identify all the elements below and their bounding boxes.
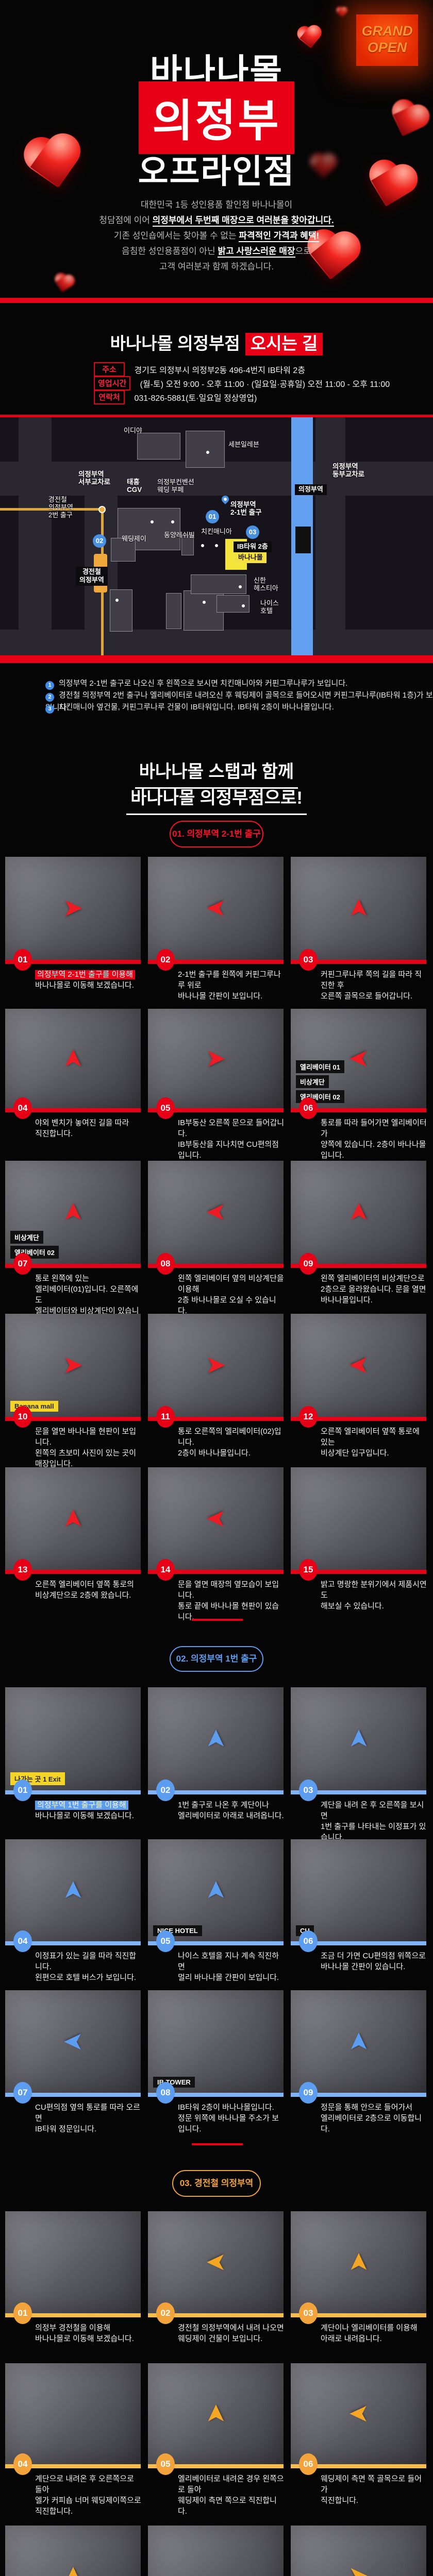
direction-arrow-icon: ➤: [61, 1880, 86, 1901]
red-divider-band-map: [0, 655, 433, 663]
caption-line: 비상계단으로 2층에 왔습니다.: [35, 1590, 142, 1601]
step-number-badge-10: 10: [13, 1406, 32, 1428]
step-caption-04: 이정표가 있는 길을 따라 직진합니다.왼편으로 호텔 버스가 보입니다.: [35, 1951, 142, 1983]
step-caption-06: 조금 더 가면 CU편의점 위쪽으로바나나몰 간판이 있습니다.: [321, 1951, 428, 1972]
map-label: 의정부컨벤션 웨딩 부페: [157, 478, 194, 494]
step-number-badge-11: 11: [156, 1406, 175, 1428]
phone-label: 연락처: [94, 390, 125, 404]
map-label: 나이스 호텔: [260, 599, 279, 615]
caption-line: 통로 오른쪽의 엘리베이터(02)입니다.: [178, 1426, 285, 1448]
phone-value: 031-826-5881(토·일요일 정상영업): [134, 394, 257, 403]
section-pill-1: 01. 의정부역 2-1번 출구: [170, 821, 263, 848]
step-photo-01-04: ➤: [5, 1009, 141, 1108]
legend-badge-1: 1: [45, 681, 54, 690]
map-road: [19, 417, 52, 655]
caption-line: 2층 바나나몰로 오실 수 있습니다.: [178, 1295, 285, 1316]
caption-line: 왼쪽 엘리베이터의 비상계단으로: [321, 1273, 428, 1284]
direction-arrow-icon: ➤: [346, 1202, 371, 1223]
legend-text: 의정부역 2-1번 출구로 나오신 후 왼쪽으로 보시면 치킨매니아와 커핀그루…: [59, 679, 347, 688]
step-number-badge-08: 08: [156, 2082, 175, 2104]
caption-line: 멀리 바나나몰 간판이 보입니다.: [178, 1972, 285, 1983]
section-divider-2: [192, 2143, 243, 2145]
caption-line: 직진합니다.: [321, 2495, 428, 2506]
caption-line: 엘리베이터로 아래로 내려옵니다.: [178, 1810, 285, 1821]
address-value: 경기도 의정부시 의정부2동 496-4번지 IB타워 2층: [134, 366, 305, 375]
direction-arrow-icon: ➤: [61, 1202, 86, 1223]
step-number-badge-14: 14: [156, 1559, 175, 1581]
step-number-badge-02: 02: [156, 949, 175, 971]
caption-line: 통로 왼쪽에 있는: [35, 1273, 142, 1284]
intro-highlight: 의정부에서 두번째 매장으로 여러분을 찾아갑니다.: [153, 215, 334, 227]
step-number-badge-08: 08: [156, 1253, 175, 1275]
step-caption-03: 계단이나 엘리베이터를 이용해아래로 내려옵니다.: [321, 2323, 428, 2344]
intro-text: 으로: [295, 246, 311, 256]
step-number-badge-04: 04: [13, 1097, 32, 1119]
step-photo-01-03: ➤: [291, 857, 426, 960]
map-label: 경전철 의정부역 2번 출구: [48, 496, 73, 519]
step-number-badge-01: 01: [13, 949, 32, 971]
intro-highlight: 밝고 사랑스러운 매장: [218, 246, 295, 258]
caption-line: IB타워 정문입니다.: [35, 2124, 142, 2134]
caption-line: 웨딩제이 건물이 보입니다.: [178, 2333, 285, 2344]
step-caption-07: CU편의점 옆의 통로를 따라 오르면IB타워 정문입니다.: [35, 2102, 142, 2134]
map-building: [166, 593, 181, 629]
map-label: 의정부역 동부교차로: [332, 463, 364, 478]
direction-arrow-icon: ➤: [61, 1048, 86, 1069]
photo-label-chip: 비상계단: [10, 1231, 43, 1244]
step-photo-02-08: IB TOWER: [148, 1990, 284, 2093]
step-photo-03-02: ➤: [148, 2211, 284, 2313]
caption-line: 경전철 의정부역에서 내려 나오면: [178, 2323, 285, 2333]
intro-highlight: 파격적인 가격과 혜택!: [239, 231, 319, 242]
caption-line: 직진합니다.: [35, 1128, 142, 1139]
directions-heading: 바나나몰 의정부점오시는 길: [0, 330, 433, 354]
step-number-badge-04: 04: [13, 2453, 32, 2475]
heart-icon: [52, 275, 75, 296]
step-caption-01: 의정부역 2-1번 출구를 이용해바나나몰로 이동해 보겠습니다.: [35, 969, 142, 991]
caption-line: 엘리베이터로 2층으로 이동합니다.: [321, 2113, 428, 2134]
caption-line: 계단으로 내려온 후 오른쪽으로 돌아: [35, 2473, 142, 2495]
map-label: 세븐일레븐: [228, 440, 259, 448]
legend-text: 치킨매니아 옆건물, 커핀그루나루 건물이 IB타워입니다. IB타워 2층이 …: [59, 703, 334, 711]
step-number-badge-13: 13: [13, 1559, 32, 1581]
map-leader-dot: [115, 599, 119, 602]
step-caption-13: 오른쪽 엘리베이터 옆쪽 통로의비상계단으로 2층에 왔습니다.: [35, 1579, 142, 1601]
promo-page: 바나나몰 의정부 오프라인점 GRAND OPEN 대한민국 1등 성인용품 할…: [0, 0, 433, 2576]
caption-highlight: 의정부역 1번 출구를 이용해: [35, 1801, 128, 1810]
step-photo-03-06: ➤: [291, 2363, 426, 2464]
caption-line: 바나나몰입니다.: [321, 1295, 428, 1306]
step-photo-01-01: ➤: [5, 857, 141, 960]
step-caption-09: 왼쪽 엘리베이터의 비상계단으로2층으로 올라왔습니다. 문을 열면바나나몰입니…: [321, 1273, 428, 1306]
map-point-badge-02: 02: [93, 534, 106, 548]
route-map: 이디야세븐일레븐의정부역 서부교차로태흥 CGV의정부컨벤션 웨딩 부페의정부역…: [0, 417, 433, 655]
intro-line-5: 고객 여러분과 함께 하겠습니다.: [0, 259, 433, 275]
map-leader-dot: [239, 585, 242, 588]
step-photo-02-06: CU: [291, 1839, 426, 1941]
caption-line: 엘리베이터로 내려온 경우 왼쪽으로 돌아: [178, 2473, 285, 2495]
steps-heading-line2: 바나나몰 의정부점으로!: [0, 784, 433, 815]
map-label: 태흥 CGV: [127, 478, 142, 494]
map-label: 신한 헤스티아: [254, 577, 278, 592]
step-caption-08: IB타워 2층이 바나나몰입니다.정문 위쪽에 바나나몰 주소가 보입니다.: [178, 2102, 285, 2134]
directions-heading-accent: 오시는 길: [245, 333, 323, 355]
direction-arrow-icon: ➤: [348, 1353, 369, 1378]
address-label: 주소: [94, 362, 125, 377]
caption-line: CU편의점 옆의 통로를 따라 오르면: [35, 2102, 142, 2124]
grand-open-line2: OPEN: [356, 39, 418, 56]
map-road: [315, 417, 345, 655]
caption-line: 문을 열면 매장의 옆모습이 보입니다.: [178, 1579, 285, 1601]
caption-line: 조금 더 가면 CU편의점 위쪽으로: [321, 1951, 428, 1961]
direction-arrow-icon: ➤: [205, 1353, 226, 1378]
caption-line: 야외 벤치가 놓여진 길을 따라: [35, 1117, 142, 1128]
step-photo-01-12: ➤: [291, 1314, 426, 1417]
direction-arrow-icon: ➤: [348, 1046, 369, 1071]
direction-arrow-icon: ➤: [204, 2403, 228, 2424]
map-building: [110, 589, 132, 632]
step-caption-09: 정문을 통해 안으로 들어가서엘리베이터로 2층으로 이동합니다.: [321, 2102, 428, 2134]
caption-line: 1번 출구로 나온 후 계단이나: [178, 1800, 285, 1810]
step-caption-14: 문을 열면 매장의 옆모습이 보입니다.통로 끝에 바나나몰 현판이 있습니다.: [178, 1579, 285, 1622]
caption-line: 나이스 호텔을 지나 계속 직진하면: [178, 1951, 285, 1972]
direction-arrow-icon: ➤: [205, 2250, 226, 2275]
step-photo-03-07: ➤: [5, 2526, 141, 2576]
caption-line: 엘리베이터(01)입니다. 오른쪽에도: [35, 1284, 142, 1306]
step-number-badge-07: 07: [13, 1253, 32, 1275]
caption-line: 의정부역 2-1번 출구를 이용해: [35, 969, 142, 980]
caption-line: 웨딩제이 측면 쪽으로 직진합니다.: [178, 2495, 285, 2517]
section-divider-1: [192, 1619, 243, 1621]
step-photo-01-11: ➤: [148, 1314, 284, 1417]
step-photo-03-03: ➤: [291, 2211, 426, 2313]
step-caption-03: 계단을 내려 온 후 오른쪽을 보시면1번 출구를 나타내는 이정표가 있습니다…: [321, 1800, 428, 1843]
section-pill-2: 02. 의정부역 1번 출구: [170, 1646, 263, 1672]
caption-line: 아래로 내려옵니다.: [321, 2333, 428, 2344]
step-caption-02: 경전철 의정부역에서 내려 나오면웨딩제이 건물이 보입니다.: [178, 2323, 285, 2344]
legend-badge-2: 2: [45, 693, 54, 702]
caption-line: 문을 열면 바나나몰 현판이 보입니다.: [35, 1426, 142, 1448]
direction-arrow-icon: ➤: [346, 1728, 371, 1749]
step-caption-04: 야외 벤치가 놓여진 길을 따라직진합니다.: [35, 1117, 142, 1139]
map-leader-dot: [171, 520, 174, 523]
step-caption-05: 나이스 호텔을 지나 계속 직진하면멀리 바나나몰 간판이 보입니다.: [178, 1951, 285, 1983]
map-label: 의정부역 서부교차로: [78, 470, 110, 486]
step-caption-03: 커핀그루나루 쪽의 길을 따라 직진한 후오른쪽 골목으로 들어갑니다.: [321, 969, 428, 1002]
map-leader-dot: [203, 601, 206, 604]
step-number-badge-06: 06: [299, 1097, 318, 1119]
direction-arrow-icon: ➤: [346, 2031, 371, 2052]
caption-line: 정문을 통해 안으로 들어가서: [321, 2102, 428, 2113]
map-leader-dot: [151, 520, 154, 523]
section-pill-3: 03. 경전철 의정부역: [172, 2170, 261, 2197]
direction-arrow-icon: ➤: [346, 898, 371, 919]
step-photo-03-04: [5, 2363, 141, 2464]
step-number-badge-09: 09: [299, 1253, 318, 1275]
map-station-box: 의정부역: [295, 484, 327, 495]
phone-row: 연락처 031-826-5881(토·일요일 정상영업): [94, 390, 257, 403]
lrt-exit-dot: [98, 506, 106, 513]
caption-line: 바나나몰 간판이 보입니다.: [178, 991, 285, 1002]
intro-text: 청담점에 이어: [99, 215, 152, 225]
step-number-badge-15: 15: [299, 1559, 318, 1581]
map-label: 의정부역 2-1번 출구: [230, 501, 262, 516]
step-caption-15: 밝고 명랑한 분위기에서 제품시연도해보실 수 있습니다.: [321, 1579, 428, 1612]
step-caption-02: 2-1번 출구를 왼쪽에 커핀그루나루 위로바나나몰 간판이 보입니다.: [178, 969, 285, 1002]
hero-title-city-wrap: 의정부: [0, 81, 433, 154]
caption-line: 직진합니다.: [35, 2506, 142, 2517]
caption-line: 이정표가 있는 길을 따라 직진합니다.: [35, 1951, 142, 1972]
step-photo-01-08: ➤: [148, 1161, 284, 1264]
ib-tower-chip: IB타워 2층: [234, 541, 272, 552]
map-point-badge-01: 01: [206, 510, 219, 523]
step-caption-04: 계단으로 내려온 후 오른쪽으로 돌아엘가 커피숍 너머 웨딩제이쪽으로직진합니…: [35, 2473, 142, 2517]
direction-arrow-icon: ➤: [61, 2566, 86, 2576]
step-photo-01-05: ➤: [148, 1009, 284, 1108]
step-number-badge-04: 04: [13, 1930, 32, 1952]
map-building: [137, 433, 180, 460]
caption-line: 양쪽에 있습니다. 2층이 바나나몰입니다.: [321, 1139, 428, 1161]
map-label: 이디야: [124, 427, 142, 434]
direction-arrow-icon: ➤: [205, 1200, 226, 1225]
directions-heading-main: 바나나몰 의정부점: [110, 334, 240, 353]
caption-line: 왼쪽 엘리베이터 옆의 비상계단을 이용해: [178, 1273, 285, 1295]
map-label: 치킨매니아: [201, 528, 232, 535]
photo-labels: 엘리베이터 01비상계단엘리베이터 02: [296, 1060, 344, 1103]
legend-item-3: 3치킨매니아 옆건물, 커핀그루나루 건물이 IB타워입니다. IB타워 2층이…: [45, 701, 334, 714]
step-photo-01-14: ➤: [148, 1467, 284, 1570]
map-pin-icon: [220, 494, 230, 504]
hours-value: (월-토) 오전 9:00 - 오후 11:00 · (일요일·공휴일) 오전 …: [140, 380, 390, 389]
step-caption-02: 1번 출구로 나온 후 계단이나엘리베이터로 아래로 내려옵니다.: [178, 1800, 285, 1821]
step-photo-01-07: ➤비상계단엘리베이터 02: [5, 1161, 141, 1264]
step-photo-03-08: 새마을 식당: [148, 2526, 284, 2576]
step-number-badge-05: 05: [156, 2453, 175, 2475]
map-building: [191, 574, 246, 594]
grand-open-line1: GRAND: [356, 23, 418, 39]
direction-arrow-icon: ➤: [62, 1353, 83, 1378]
direction-arrow-icon: ➤: [61, 1508, 86, 1529]
step-caption-10: 문을 열면 바나나몰 현판이 보입니다.왼쪽의 츠보미 사진이 있는 곳이매장입…: [35, 1426, 142, 1469]
step-caption-08: 왼쪽 엘리베이터 옆의 비상계단을 이용해2층 바나나몰로 오실 수 있습니다.: [178, 1273, 285, 1316]
caption-line: 왼편으로 호텔 버스가 보입니다.: [35, 1972, 142, 1983]
step-number-badge-02: 02: [156, 2302, 175, 2324]
grand-open-badge: GRAND OPEN: [356, 14, 418, 66]
step-number-badge-12: 12: [299, 1406, 318, 1428]
map-road: [0, 630, 433, 655]
heart-icon: [335, 7, 348, 19]
step-caption-12: 오른쪽 엘리베이터 옆쪽 통로에 있는비상계단 입구입니다.: [321, 1426, 428, 1459]
step-photo-03-05: ➤: [148, 2363, 284, 2464]
step-caption-01: 의정부역 1번 출구를 이용해바나나몰로 이동해 보겠습니다.: [35, 1800, 142, 1821]
direction-arrow-icon: ➤: [348, 2401, 369, 2426]
map-leader-dot: [242, 604, 245, 607]
caption-line: 2층이 바나나몰입니다.: [178, 1448, 285, 1459]
intro-line-2: 청담점에 이어 의정부에서 두번째 매장으로 여러분을 찾아갑니다.: [0, 213, 433, 228]
step-photo-03-09: ➤: [291, 2526, 426, 2576]
map-leader-dot: [201, 544, 204, 547]
step-photo-01-09: ➤: [291, 1161, 426, 1264]
address-row: 주소 경기도 의정부시 의정부2동 496-4번지 IB타워 2층: [94, 362, 305, 376]
intro-text: 음침한 성인용품점이 아닌: [122, 246, 218, 256]
intro-text: 기존 성인숍에서는 찾아볼 수 없는: [114, 231, 239, 241]
hours-row: 영업시간 (월-토) 오전 9:00 - 오후 11:00 · (일요일·공휴일…: [94, 376, 390, 389]
direction-arrow-icon: ➤: [348, 2564, 369, 2576]
hero-title-store-type: 오프라인점: [0, 145, 433, 193]
caption-line: IB부동산 오른쪽 문으로 들어갑니다.: [178, 1117, 285, 1139]
caption-line: 계단이나 엘리베이터를 이용해: [321, 2323, 428, 2333]
step-number-badge-03: 03: [299, 1780, 318, 1801]
caption-line: IB타워 2층이 바나나몰입니다.: [178, 2102, 285, 2113]
step-number-badge-03: 03: [299, 949, 318, 971]
step-photo-02-09: ➤: [291, 1990, 426, 2093]
step-photo-01-06: ➤엘리베이터 01비상계단엘리베이터 02: [291, 1009, 426, 1108]
step-caption-05: IB부동산 오른쪽 문으로 들어갑니다.IB부동산을 지나치면 CU편의점입니다…: [178, 1117, 285, 1161]
heart-shape: [49, 273, 77, 298]
map-building: [216, 595, 249, 613]
caption-line: 오른쪽 엘리베이터 옆쪽 통로의: [35, 1579, 142, 1590]
direction-arrow-icon: ➤: [205, 1506, 226, 1531]
caption-line: 통로를 따라 들어가면 엘리베이터가: [321, 1117, 428, 1139]
caption-highlight: 의정부역 2-1번 출구를 이용해: [35, 970, 135, 979]
caption-line: 의정부역 1번 출구를 이용해: [35, 1800, 142, 1810]
step-photo-01-15: [291, 1467, 426, 1570]
step-number-badge-02: 02: [156, 1780, 175, 1801]
caption-line: 오른쪽 엘리베이터 옆쪽 통로에 있는: [321, 1426, 428, 1448]
caption-line: 2-1번 출구를 왼쪽에 커핀그루나루 위로: [178, 969, 285, 991]
photo-label-chip: 엘리베이터 01: [296, 1060, 344, 1073]
caption-line: 밝고 명랑한 분위기에서 제품시연도: [321, 1579, 428, 1601]
caption-line: 바나나몰로 이동해 보겠습니다.: [35, 2333, 142, 2344]
intro-text: 고객 여러분과 함께 하겠습니다.: [159, 262, 274, 272]
direction-arrow-icon: ➤: [205, 1046, 226, 1071]
direction-arrow-icon: ➤: [205, 896, 226, 921]
bananamall-chip: 바나나몰: [235, 552, 267, 563]
step-photo-01-02: ➤: [148, 857, 284, 960]
caption-line: IB부동산을 지나치면 CU편의점입니다.: [178, 1139, 285, 1161]
rail-station-platform: [295, 527, 311, 553]
direction-arrow-icon: ➤: [62, 896, 83, 921]
intro-text: 대한민국 1등 성인용품 할인점 바나나몰이: [141, 200, 292, 210]
step-number-badge-01: 01: [13, 2302, 32, 2324]
step-number-badge-05: 05: [156, 1097, 175, 1119]
heart-shape: [335, 7, 348, 19]
step-photo-03-01: [5, 2211, 141, 2313]
caption-line: 정문 위쪽에 바나나몰 주소가 보입니다.: [178, 2113, 285, 2134]
direction-arrow-icon: ➤: [62, 2029, 83, 2054]
step-caption-11: 통로 오른쪽의 엘리베이터(02)입니다.2층이 바나나몰입니다.: [178, 1426, 285, 1459]
step-photo-01-13: ➤: [5, 1467, 141, 1570]
step-number-badge-05: 05: [156, 1930, 175, 1952]
step-number-badge-06: 06: [299, 1930, 318, 1952]
direction-arrow-icon: ➤: [204, 1728, 228, 1749]
caption-line: 2층으로 올라왔습니다. 문을 열면: [321, 1284, 428, 1295]
caption-line: 바나나몰로 이동해 보겠습니다.: [35, 980, 142, 991]
legend-item-1: 1의정부역 2-1번 출구로 나오신 후 왼쪽으로 보시면 치킨매니아와 커핀그…: [45, 677, 347, 690]
step-number-badge-06: 06: [299, 2453, 318, 2475]
step-number-badge-09: 09: [299, 2082, 318, 2104]
caption-line: 커핀그루나루 쪽의 길을 따라 직진한 후: [321, 969, 428, 991]
caption-line: 비상계단 입구입니다.: [321, 1448, 428, 1459]
step-number-badge-01: 01: [13, 1780, 32, 1801]
map-point-badge-03: 03: [246, 526, 259, 539]
direction-arrow-icon: ➤: [204, 1880, 228, 1901]
step-number-badge-03: 03: [299, 2302, 318, 2324]
caption-line: 바나나몰로 이동해 보겠습니다.: [35, 1810, 142, 1821]
step-photo-02-05: ➤NICE HOTEL: [148, 1839, 284, 1941]
direction-arrow-icon: ➤: [346, 2252, 371, 2273]
step-photo-02-04: ➤: [5, 1839, 141, 1941]
intro-line-3: 기존 성인숍에서는 찾아볼 수 없는 파격적인 가격과 혜택!: [0, 228, 433, 244]
caption-line: 엘가 커피숍 너머 웨딩제이쪽으로: [35, 2495, 142, 2506]
map-label: 웨딩제이: [122, 535, 146, 543]
caption-line: 해보실 수 있습니다.: [321, 1601, 428, 1612]
caption-line: 오른쪽 골목으로 들어갑니다.: [321, 991, 428, 1002]
red-divider-band-top: [0, 298, 433, 303]
caption-line: 계단을 내려 온 후 오른쪽을 보시면: [321, 1800, 428, 1821]
step-caption-06: 웨딩제이 측면 쪽 골목으로 들어가직진합니다.: [321, 2473, 428, 2506]
step-photo-01-10: ➤Banana mall: [5, 1314, 141, 1417]
hours-label: 영업시간: [94, 376, 130, 391]
caption-line: 왼쪽의 츠보미 사진이 있는 곳이: [35, 1448, 142, 1459]
map-leader-dot: [215, 544, 218, 547]
step-caption-01: 의정부 경전철을 이용해바나나몰로 이동해 보겠습니다.: [35, 2323, 142, 2344]
caption-line: 의정부 경전철을 이용해: [35, 2323, 142, 2333]
step-photo-02-02: ➤: [148, 1687, 284, 1790]
step-caption-05: 엘리베이터로 내려온 경우 왼쪽으로 돌아웨딩제이 측면 쪽으로 직진합니다.: [178, 2473, 285, 2517]
intro-line-1: 대한민국 1등 성인용품 할인점 바나나몰이: [0, 197, 433, 213]
step-photo-02-07: ➤: [5, 1990, 141, 2093]
step-caption-06: 통로를 따라 들어가면 엘리베이터가양쪽에 있습니다. 2층이 바나나몰입니다.: [321, 1117, 428, 1161]
step-number-badge-07: 07: [13, 2082, 32, 2104]
map-building: [186, 431, 225, 468]
intro-paragraph: 대한민국 1등 성인용품 할인점 바나나몰이청담점에 이어 의정부에서 두번째 …: [0, 197, 433, 275]
map-lrt-station-box: 경전철 의정부역: [76, 567, 108, 586]
caption-line: 웨딩제이 측면 쪽 골목으로 들어가: [321, 2473, 428, 2495]
step-photo-02-01: 나가는 곳 1 Exit: [5, 1687, 141, 1790]
map-label: 동양레쉬빌: [164, 531, 195, 539]
photo-label-chip: 비상계단: [296, 1075, 329, 1088]
caption-line: 바나나몰 간판이 있습니다.: [321, 1961, 428, 1972]
legend-badge-3: 3: [45, 705, 54, 714]
hero-title-city: 의정부: [139, 81, 294, 154]
map-leader-dot: [206, 451, 209, 454]
intro-line-4: 음침한 성인용품점이 아닌 밝고 사랑스러운 매장으로: [0, 244, 433, 259]
step-photo-02-03: ➤: [291, 1687, 426, 1790]
